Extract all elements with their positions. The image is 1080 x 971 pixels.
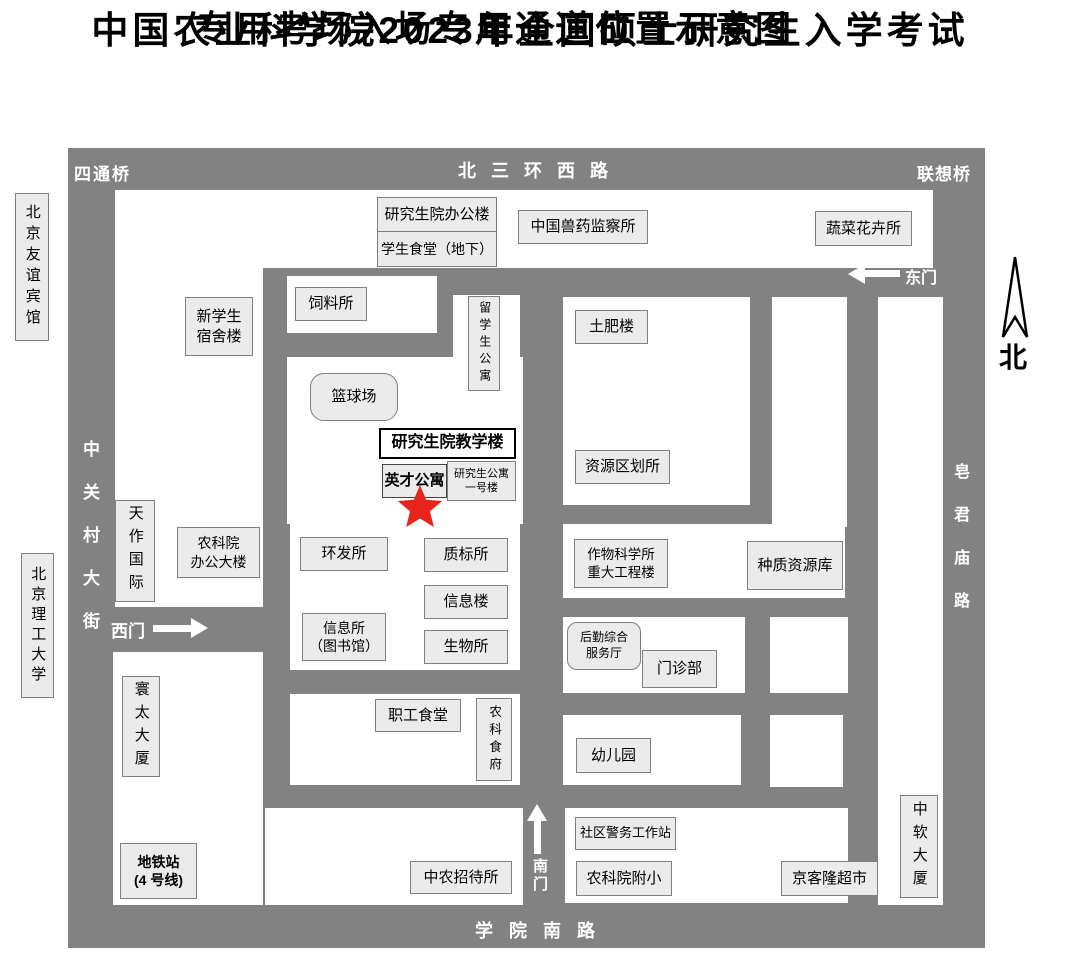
building-clinic: 门诊部 xyxy=(642,650,717,688)
building-basketball-court: 篮球场 xyxy=(310,373,398,421)
block-east-square-1 xyxy=(770,617,848,693)
road-label-xueyuan-south-rd: 学院南路 xyxy=(475,917,611,943)
compass-north-label: 北 xyxy=(999,336,1027,376)
building-resource-zoning: 资源区划所 xyxy=(575,450,670,484)
south-gate-arrow-shaft xyxy=(534,820,541,854)
landmark-bit-university: 北京理工大学 xyxy=(21,553,54,698)
building-crop-science: 作物科学所 重大工程楼 xyxy=(574,539,668,588)
building-vet-drug-inst: 中国兽药监察所 xyxy=(518,210,648,244)
east-gate-arrow-shaft xyxy=(864,270,900,277)
building-caas-office: 农科院 办公大楼 xyxy=(177,527,260,578)
block-ne-strip xyxy=(772,297,847,527)
building-community-police: 社区警务工作站 xyxy=(575,817,676,850)
building-grad-apt-no1: 研究生公寓 一号楼 xyxy=(447,461,516,501)
building-nongke-restaurant: 农科食府 xyxy=(476,698,512,781)
building-logistics-center: 后勤综合 服务厅 xyxy=(567,622,641,670)
building-info-building: 信息楼 xyxy=(424,585,508,619)
east-gate-arrow-icon xyxy=(848,264,865,284)
landmark-friendship-hotel: 北京友谊宾馆 xyxy=(15,193,49,341)
building-jingkelong-market: 京客隆超市 xyxy=(781,861,878,896)
bridge-label-lianxiangqiao: 联想桥 xyxy=(917,160,971,185)
building-tianzuo-intl: 天作国际 xyxy=(115,500,155,602)
road-label-north-3rd-ring: 北三环西路 xyxy=(458,157,623,183)
building-biology-inst: 生物所 xyxy=(424,630,508,664)
block-east-square-2 xyxy=(770,715,843,787)
building-kindergarten: 幼儿园 xyxy=(576,738,651,773)
gate-label-east: 东门 xyxy=(905,264,937,288)
building-staff-canteen: 职工食堂 xyxy=(375,699,461,732)
gate-label-south: 南门 xyxy=(529,858,550,894)
campus-map-page: 中国农业科学院2023年全国硕士研究生入学考试 专用考场入场专用通道位置示意图 … xyxy=(0,0,1080,971)
exam-channel-star-icon xyxy=(397,485,443,534)
building-vegetable-flower-inst: 蔬菜花卉所 xyxy=(815,211,912,246)
road-label-zaojunmiao-rd: 皂君庙路 xyxy=(947,463,971,635)
west-gate-arrow-shaft xyxy=(153,625,191,632)
gate-label-west: 西门 xyxy=(111,617,145,642)
building-zhongruan-tower: 中软大厦 xyxy=(900,795,938,898)
south-gate-arrow-icon xyxy=(527,804,547,821)
building-germplasm-bank: 种质资源库 xyxy=(747,541,843,590)
bridge-label-sitongqiao: 四通桥 xyxy=(74,160,131,185)
building-student-canteen: 学生食堂（地下） xyxy=(377,231,497,267)
page-title-line2: 专用考场入场专用通道位置示意图 xyxy=(0,0,990,52)
road-label-zhongguancun-st: 中关村大街 xyxy=(77,440,102,655)
building-huantai-tower: 寰太大厦 xyxy=(122,676,160,777)
building-soil-fertilizer: 土肥楼 xyxy=(575,310,648,344)
building-intl-student-apt: 留学生公寓 xyxy=(468,296,500,391)
building-grad-teaching: 研究生院教学楼 xyxy=(379,428,516,459)
west-gate-arrow-icon xyxy=(191,618,208,638)
building-info-institute: 信息所 （图书馆） xyxy=(302,613,386,661)
building-zhongnong-hotel: 中农招待所 xyxy=(410,861,512,894)
building-env-dev-inst: 环发所 xyxy=(300,537,388,571)
building-subway-station: 地铁站 (4 号线) xyxy=(120,843,197,899)
building-grad-office: 研究生院办公楼 xyxy=(377,197,497,232)
building-caas-primary-school: 农科院附小 xyxy=(576,861,672,896)
north-compass-icon xyxy=(1000,255,1030,346)
building-quality-std-inst: 质标所 xyxy=(424,538,508,572)
building-feed-inst: 饲料所 xyxy=(295,287,367,321)
building-new-student-dorm: 新学生 宿舍楼 xyxy=(185,297,253,356)
